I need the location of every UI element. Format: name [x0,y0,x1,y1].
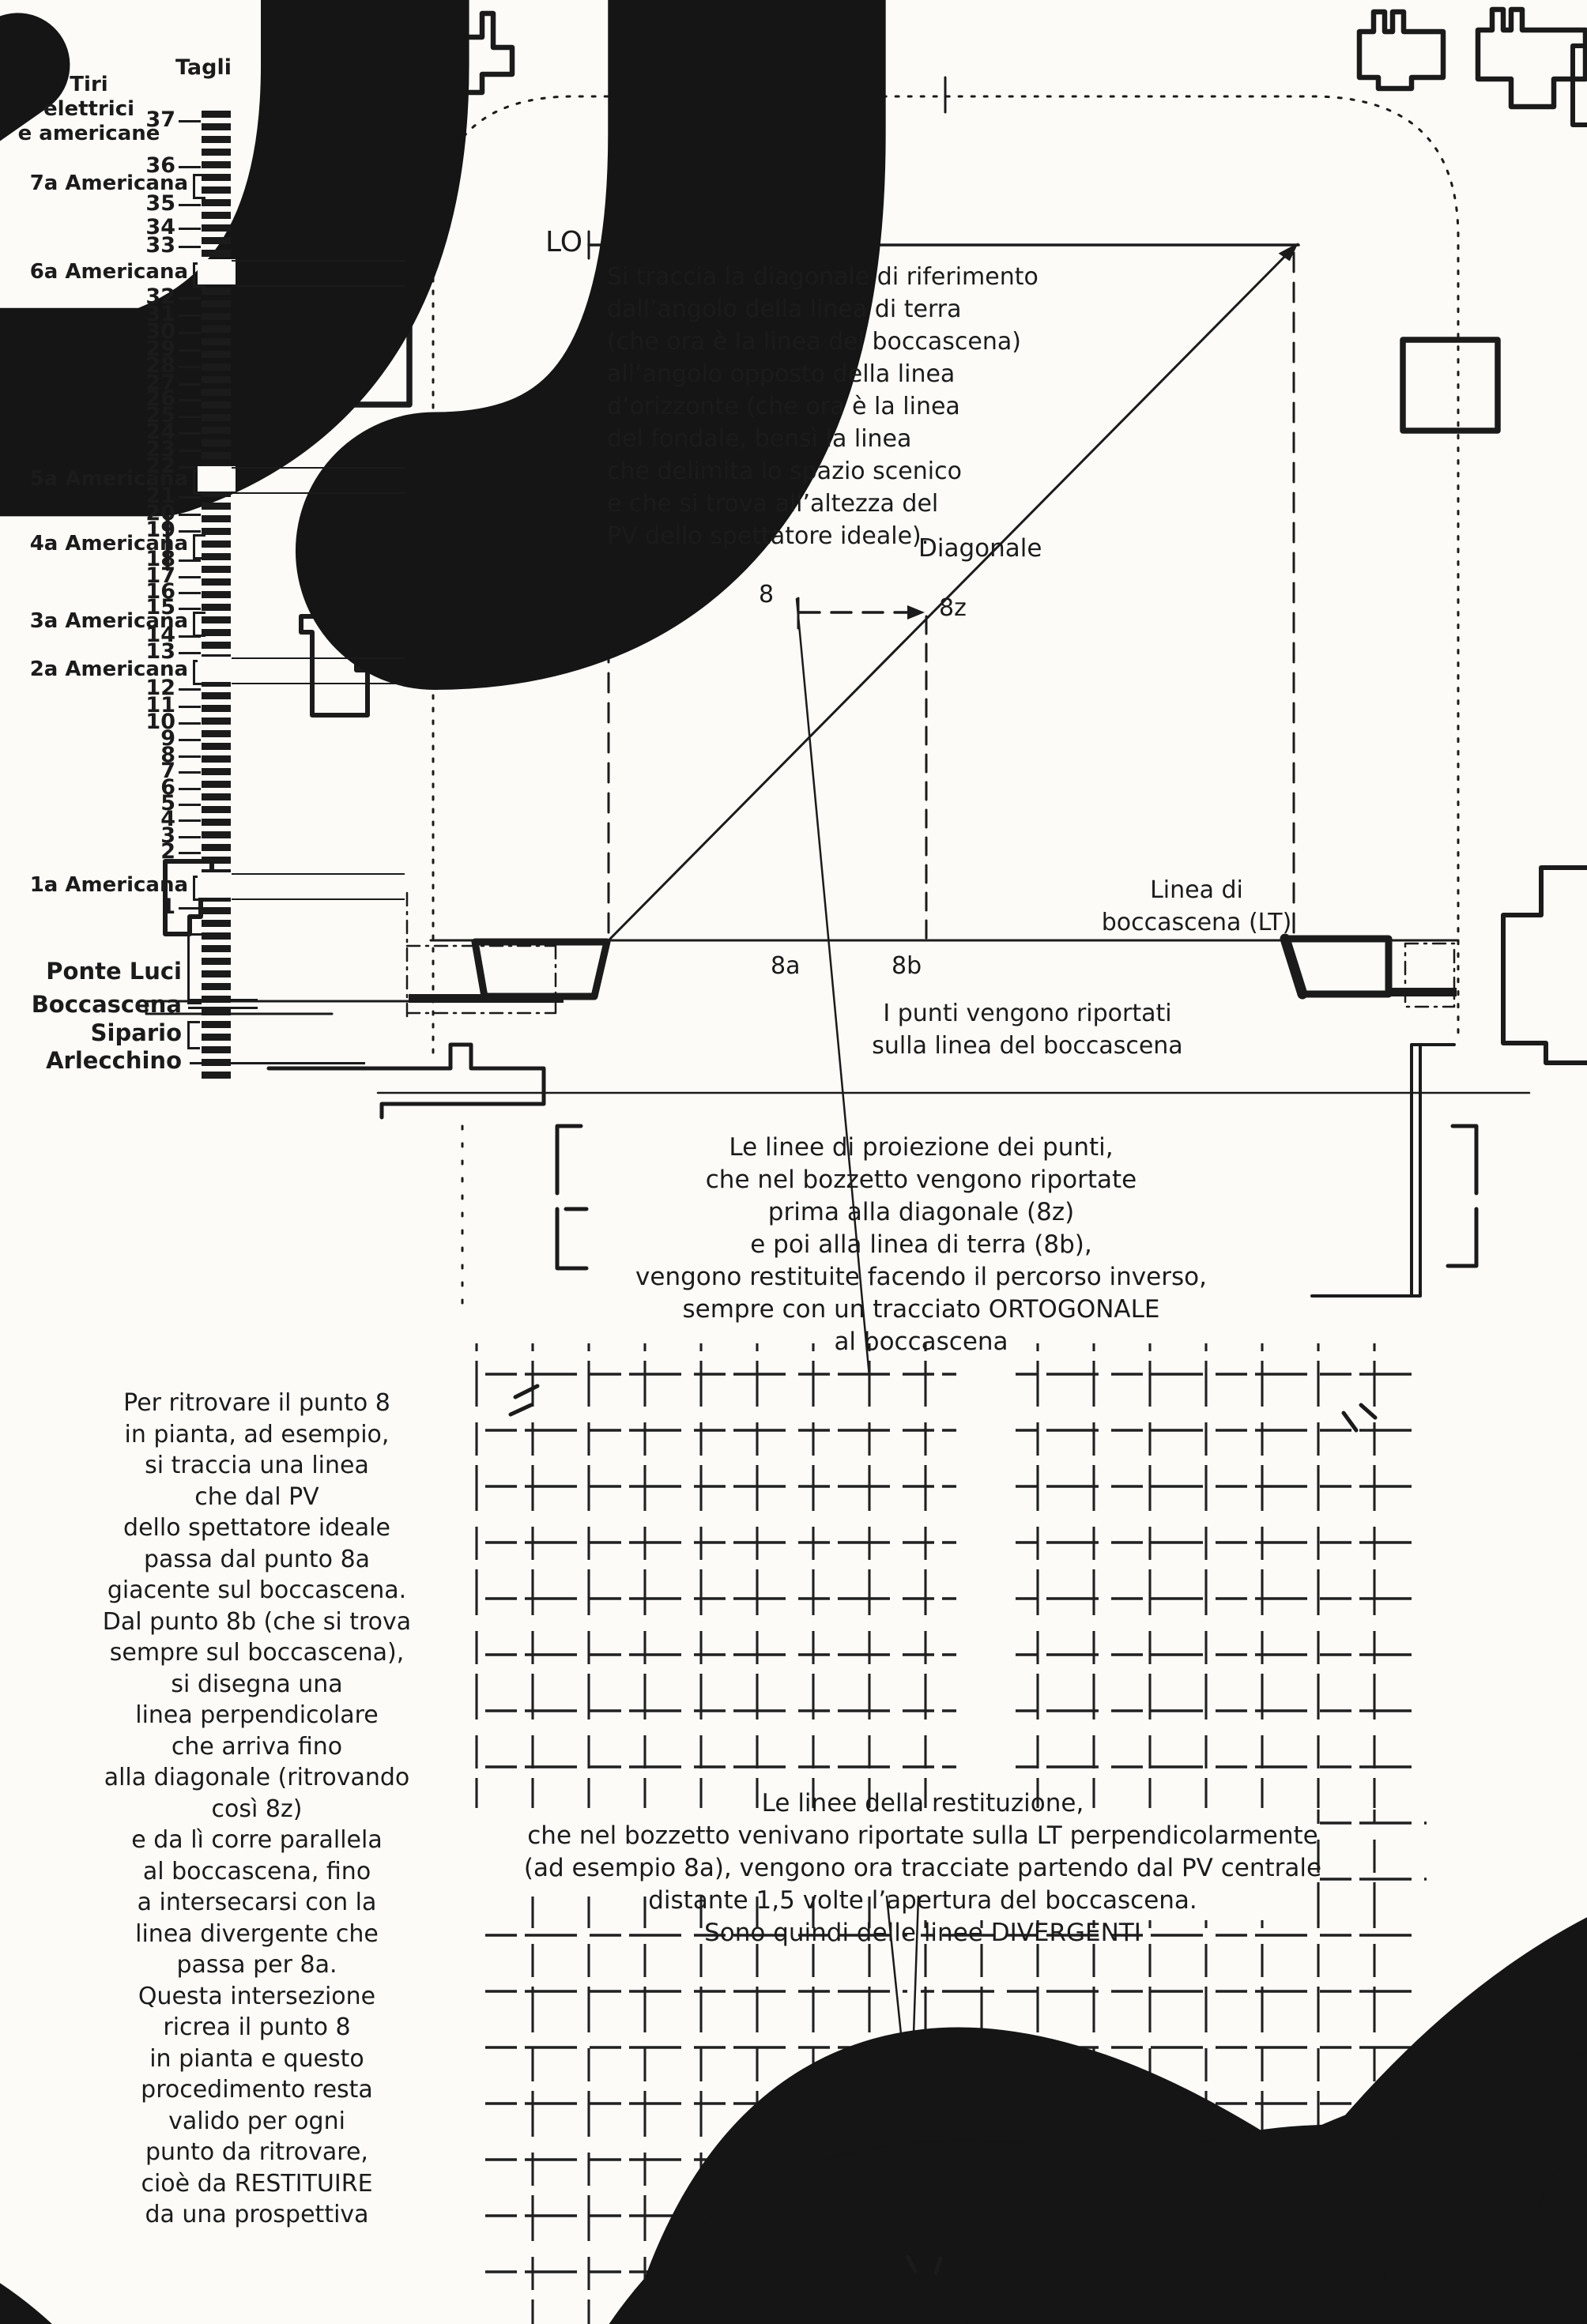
text-line: Dal punto 8b (che si trova [55,1606,458,1638]
leader-line [179,576,201,578]
label-8a: 8a [771,952,800,980]
leader-line [179,652,201,654]
americana-extension-line [232,467,405,469]
text-line: che delimita lo spazio scenico [607,455,1039,488]
label-8b: 8b [892,952,922,980]
americana-bracket [193,612,205,637]
text-line: linea perpendicolare [55,1700,458,1731]
text-line: dello spettatore ideale [55,1512,458,1544]
text-line: che arriva fino [55,1731,458,1763]
text-line: Questa intersezione [55,1981,458,2013]
building-outline-top-right-1 [1359,12,1443,89]
paragraph-diagonale: Si traccia la diagonale di riferimentoda… [607,261,1039,552]
text-line: I punti vengono riportati [834,997,1221,1030]
americana-extension-line [232,873,405,875]
leader-line [179,514,201,516]
text-line: valido per ogni [55,2106,458,2138]
caption-punti-riportati: I punti vengono riportatisulla linea del… [834,997,1221,1062]
text-line: cioè da RESTITUIRE [55,2168,458,2200]
legend-tagli-header: Tagli [175,55,232,80]
text-line: ricrea il punto 8 [55,2012,458,2043]
text-line: si disegna una [55,1669,458,1701]
text-line: PV dello spettatore ideale). [607,520,1039,552]
text-line: Le linee di proiezione dei punti, [441,1132,1401,1164]
leader-line [179,332,201,334]
leader-line [179,416,201,418]
ladder-gap [198,872,236,898]
americana-extension-line [232,683,405,684]
text-line: e poi alla linea di terra (8b), [441,1229,1401,1261]
leader-line [179,246,201,248]
text-line: (che ora è la linea del boccascena) [607,326,1039,358]
text-line: al boccascena, fino [55,1856,458,1888]
text-line: procedimento resta [55,2074,458,2106]
text-line: (ad esempio 8a), vengono ora tracciate p… [439,1852,1407,1885]
paragraph-restituzione-procedura: Per ritrovare il punto 8in pianta, ad es… [55,1388,458,2231]
text-line: punto da ritrovare, [55,2137,458,2168]
text-line: che nel bozzetto vengono riportate [441,1164,1401,1196]
label-8: 8 [759,581,774,608]
building-outline-mid-right [1503,868,1587,1063]
americana-bracket [193,174,205,199]
ladder-gap [198,259,236,284]
americana-extension-line [232,260,405,262]
leader-line [179,432,201,435]
dashdot-right [1405,944,1454,1007]
paragraph-proiezione: Le linee di proiezione dei punti,che nel… [441,1132,1401,1358]
leader-line [179,771,201,774]
text-line: sulla linea del boccascena [834,1030,1221,1062]
text-line: alla diagonale (ritrovando [55,1762,458,1794]
leader-line [179,228,201,230]
scanned-scenography-page: Tirielettricie americane Tagli 37367a Am… [0,0,1587,2324]
wall-inner-right [1448,1126,1476,1266]
fly-bar-ladder [202,111,231,1081]
fly-line-number: 37 [120,107,175,132]
leader-line [179,297,201,299]
text-line: d’orizzonte (che ora è la linea [607,390,1039,423]
text-line: Sono quindi delle linee DIVERGENTI [439,1917,1407,1949]
text-line: in pianta, ad esempio, [55,1419,458,1451]
americana-bracket [193,534,205,559]
text-line: Tiri [16,73,162,97]
americana-extension-line [232,285,405,287]
text-line: vengono restituite facendo il percorso i… [441,1261,1401,1294]
fly-line-number: 33 [120,233,175,258]
fly-line-number: 1 [120,895,175,919]
text-line: Si traccia la diagonale di riferimento [607,261,1039,293]
zone-sipario: Sipario [20,1019,182,1046]
leader-line [179,722,201,725]
label-linea-boccascena: Linea diboccascena (LT) [1091,874,1302,939]
label-lo: LO [545,226,582,258]
leader-line [179,755,201,758]
leader-line [179,907,201,910]
leader-line [179,559,201,562]
zone-arlecchino: Arlecchino [20,1047,182,1074]
leader-line [179,688,201,691]
ladder-gap [198,657,236,682]
americana-extension-line [232,657,405,659]
text-line: così 8z) [55,1794,458,1825]
ponte-luci-bracket [187,933,202,1004]
text-line: in pianta e questo [55,2043,458,2075]
leader-line [179,819,201,822]
text-line: Linea di [1091,874,1302,906]
text-line: boccascena (LT) [1091,906,1302,939]
zone-boccascena: Boccascena [20,991,182,1018]
americana-label: 1a Americana [10,873,188,897]
seating-grid-mid-left [474,1343,956,1808]
text-line: al boccascena [441,1326,1401,1358]
text-line: all’angolo opposto della linea [607,358,1039,390]
leader-line [179,166,201,168]
leader-line [179,706,201,708]
leader-line [179,788,201,790]
building-rect-right [1403,340,1498,431]
text-line: giacente sul boccascena. [55,1575,458,1606]
leader-line [179,204,201,206]
text-line: da una prospettiva [55,2199,458,2231]
label-8z: 8z [939,594,967,622]
text-line: Per ritrovare il punto 8 [55,1388,458,1419]
text-line: Le linee della restituzione, [439,1787,1407,1820]
arrow-8z [907,605,925,620]
leader-line [179,836,201,838]
seating-grid-mid-right [1016,1343,1423,1808]
leader-line [179,383,201,386]
paragraph-linee-divergenti: Le linee della restituzione,che nel bozz… [439,1787,1407,1949]
text-line: passa dal punto 8a [55,1544,458,1576]
text-line: si traccia una linea [55,1450,458,1482]
zone-ponte-luci: Ponte Luci [20,958,182,985]
leader-line [179,399,201,401]
text-line: a intersecarsi con la [55,1887,458,1919]
americana-extension-line [232,898,405,900]
text-line: passa per 8a. [55,1949,458,1981]
fly-line-number: 35 [120,191,175,216]
leader-line [179,739,201,741]
building-outline-top-right-2 [1478,9,1585,107]
leader-line [179,635,201,638]
leader-line [179,366,201,368]
wall-mid-left [269,1045,544,1117]
leader-line [179,349,201,352]
fly-line-number: 2 [120,839,175,864]
text-line: dall’angolo della linea di terra [607,293,1039,326]
text-line: distante 1,5 volte l’apertura del boccas… [439,1885,1407,1917]
text-line: sempre sul boccascena), [55,1637,458,1669]
text-line: sempre con un tracciato ORTOGONALE [441,1294,1401,1326]
leader-line [179,804,201,806]
leader-line [179,852,201,854]
sipario-bracket [187,1021,200,1049]
ladder-gap [198,466,236,492]
leader-line [179,592,201,594]
leader-line [179,496,201,499]
americana-extension-line [232,492,405,494]
proscenium-left-trapezoid [475,942,607,996]
text-line: e che si trova all’altezza del [607,488,1039,520]
text-line: e da lì corre parallela [55,1825,458,1856]
leader-line [179,120,201,122]
americana-label: 6a Americana [10,260,188,284]
leader-line [179,450,201,452]
text-line: del fondale, bensì la linea [607,423,1039,455]
text-line: che dal PV [55,1482,458,1513]
text-line: che nel bozzetto venivano riportate sull… [439,1820,1407,1852]
leader-line [179,315,201,317]
text-line: prima alla diagonale (8z) [441,1196,1401,1229]
text-line: linea divergente che [55,1919,458,1950]
